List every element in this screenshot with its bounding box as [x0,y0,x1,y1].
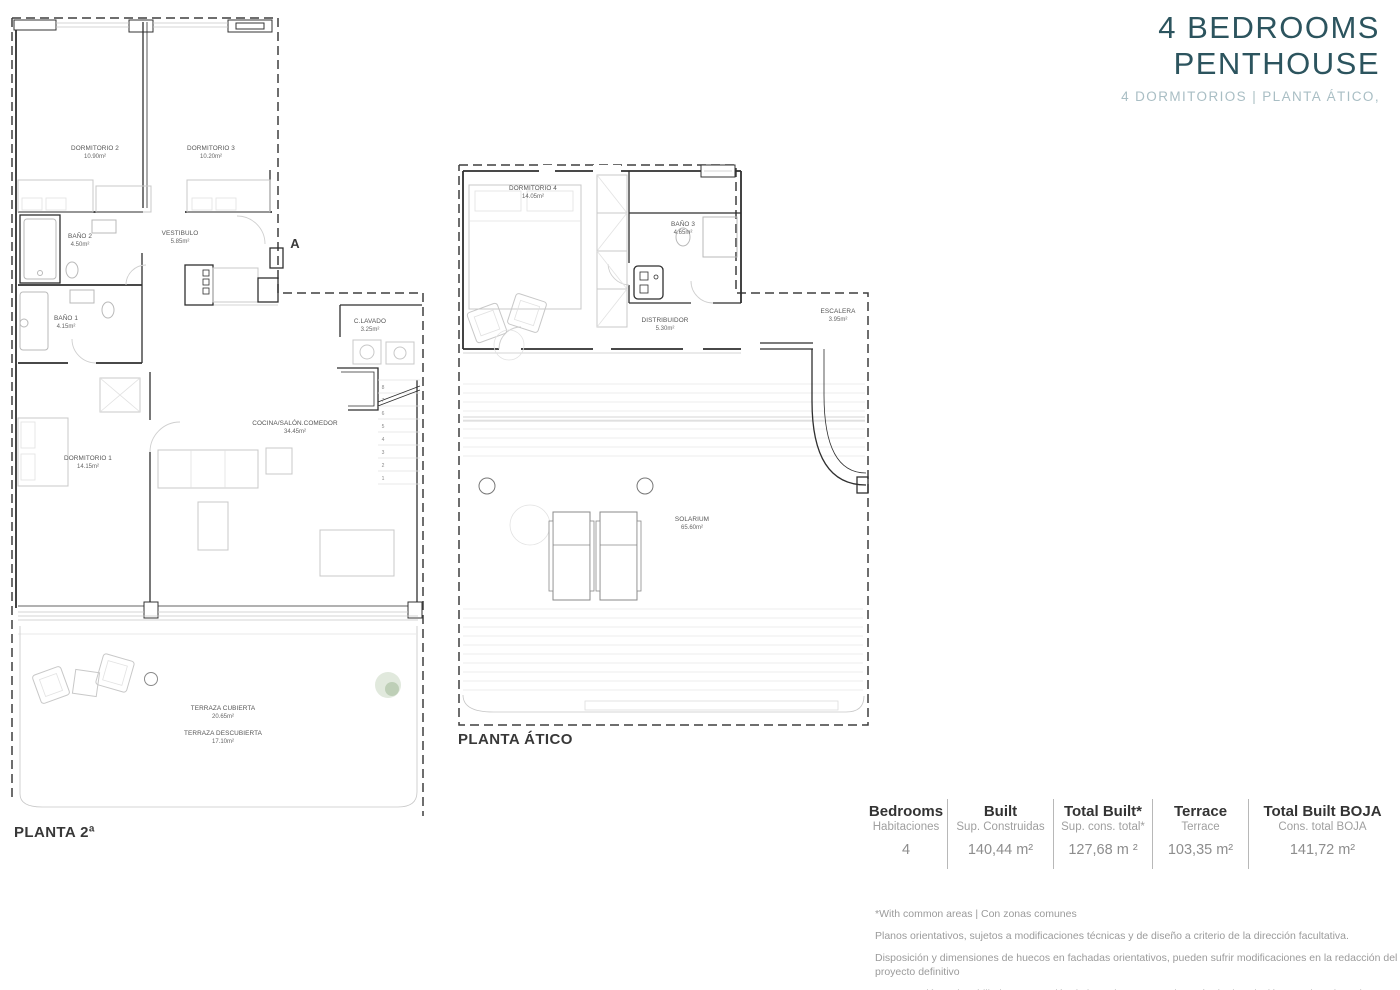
planta-atico-label: PLANTA ÁTICO [458,731,573,748]
summary-header-en: Total Built BOJA [1249,803,1396,820]
summary-header-en: Built [948,803,1053,820]
svg-text:2: 2 [382,463,385,469]
svg-text:4: 4 [382,437,385,443]
planta-2-label: PLANTA 2ª [14,824,95,841]
sun-lounger [596,512,641,600]
room-area-dormitorio2: 10.90m² [84,154,106,160]
summary-value: 140,44 m² [948,842,1053,858]
room-area-dormitorio3: 10.20m² [200,154,222,160]
svg-text:8: 8 [382,385,385,391]
svg-text:1: 1 [382,476,385,482]
room-label-clavado: C.LAVADO [354,318,386,325]
room-area-vestibulo: 5.85m² [171,239,190,245]
summary-col-built: Built Sup. Construidas 140,44 m² [947,799,1053,869]
summary-value: 4 [865,842,947,858]
room-area-clavado: 3.25m² [361,327,380,333]
room-label-terraza-descubierta: TERRAZA DESCUBIERTA [184,730,263,737]
room-area-distribuidor: 5.30m² [656,326,675,332]
room-area-cocina: 34.45m² [284,429,306,435]
room-label-dormitorio4: DORMITORIO 4 [509,185,557,192]
summary-header-es: Sup. Construidas [948,821,1053,834]
planta2-kitchen [185,248,283,305]
room-label-cocina: COCINA/SALÓN.COMEDOR [252,418,338,427]
room-label-bano3: BAÑO 3 [671,219,695,228]
room-label-distribuidor: DISTRIBUIDOR [641,317,688,324]
planta2-staircase [337,368,420,484]
summary-header-en: Bedrooms [865,803,947,820]
page-title-line1: 4 BEDROOMS [1121,10,1380,46]
room-label-bano2: BAÑO 2 [68,231,92,240]
room-label-dormitorio1: DORMITORIO 1 [64,455,112,462]
planta-atico-floorplan: DORMITORIO 4 14.05m² BAÑO 3 4.65m² DISTR… [453,155,883,730]
planta-2-floorplan: 8 7 6 5 4 3 2 1 [8,10,438,830]
room-label-escalera: ESCALERA [821,308,857,315]
planta2-doors [72,216,265,452]
summary-header-es: Habitaciones [865,821,947,834]
title-block: 4 BEDROOMS PENTHOUSE 4 DORMITORIOS | PLA… [1121,10,1380,104]
summary-col-terrace: Terrace Terrace 103,35 m² [1152,799,1248,869]
room-label-vestibulo: VESTIBULO [162,230,199,237]
atico-furniture [466,175,627,360]
svg-text:6: 6 [382,411,385,417]
room-label-bano1: BAÑO 1 [54,313,78,322]
sun-lounger [549,512,594,600]
atico-solarium-furniture [479,478,653,600]
summary-header-es: Cons. total BOJA [1249,821,1396,834]
atico-room-labels: DORMITORIO 4 14.05m² BAÑO 3 4.65m² DISTR… [509,185,856,531]
room-area-bano3: 4.65m² [674,230,693,236]
footnote-common-areas: *With common areas | Con zonas comunes [875,908,1399,922]
section-marker-a: A [290,236,300,251]
summary-header-es: Sup. cons. total* [1054,821,1152,834]
planta2-stair-numbers: 8 7 6 5 4 3 2 1 [382,385,385,482]
brochure-page: 8 7 6 5 4 3 2 1 [0,0,1400,990]
summary-value: 103,35 m² [1153,842,1248,858]
svg-text:5: 5 [382,424,385,430]
svg-text:7: 7 [382,398,385,404]
svg-text:3: 3 [382,450,385,456]
summary-header-en: Terrace [1153,803,1248,820]
room-area-bano1: 4.15m² [57,324,76,330]
summary-value: 141,72 m² [1249,842,1396,858]
summary-col-total-built: Total Built* Sup. cons. total* 127,68 m … [1053,799,1152,869]
summary-col-total-built-boja: Total Built BOJA Cons. total BOJA 141,72… [1248,799,1396,869]
planta2-boundary [12,18,423,816]
footnote-disclaimer-1: Planos orientativos, sujetos a modificac… [875,930,1399,944]
footnote-disclaimer-2: Disposición y dimensiones de huecos en f… [875,952,1399,979]
atico-doors [499,264,713,349]
room-label-terraza-cubierta: TERRAZA CUBIERTA [191,705,256,712]
summary-header-en: Total Built* [1054,803,1152,820]
footnotes: *With common areas | Con zonas comunes P… [875,908,1399,990]
room-area-bano2: 4.50m² [71,242,90,248]
room-area-terraza-cubierta: 20.65m² [212,714,234,720]
room-label-solarium: SOLARIUM [675,516,709,523]
page-title-line2: PENTHOUSE [1121,46,1380,82]
summary-header-es: Terrace [1153,821,1248,834]
summary-col-bedrooms: Bedrooms Habitaciones 4 [865,799,947,869]
summary-value: 127,68 m ² [1054,842,1152,858]
room-area-dormitorio1: 14.15m² [77,464,99,470]
room-label-dormitorio2: DORMITORIO 2 [71,145,119,152]
planta2-laundry [353,340,414,364]
room-label-dormitorio3: DORMITORIO 3 [187,145,235,152]
page-subtitle: 4 DORMITORIOS | PLANTA ÁTICO, [1121,89,1380,104]
atico-solarium-deck [463,377,865,712]
room-area-dormitorio4: 14.05m² [522,194,544,200]
room-area-terraza-descubierta: 17.10m² [212,739,234,745]
room-area-solarium: 65.60m² [681,525,703,531]
room-area-escalera: 3.95m² [829,317,848,323]
summary-table: Bedrooms Habitaciones 4 Built Sup. Const… [865,799,1396,869]
